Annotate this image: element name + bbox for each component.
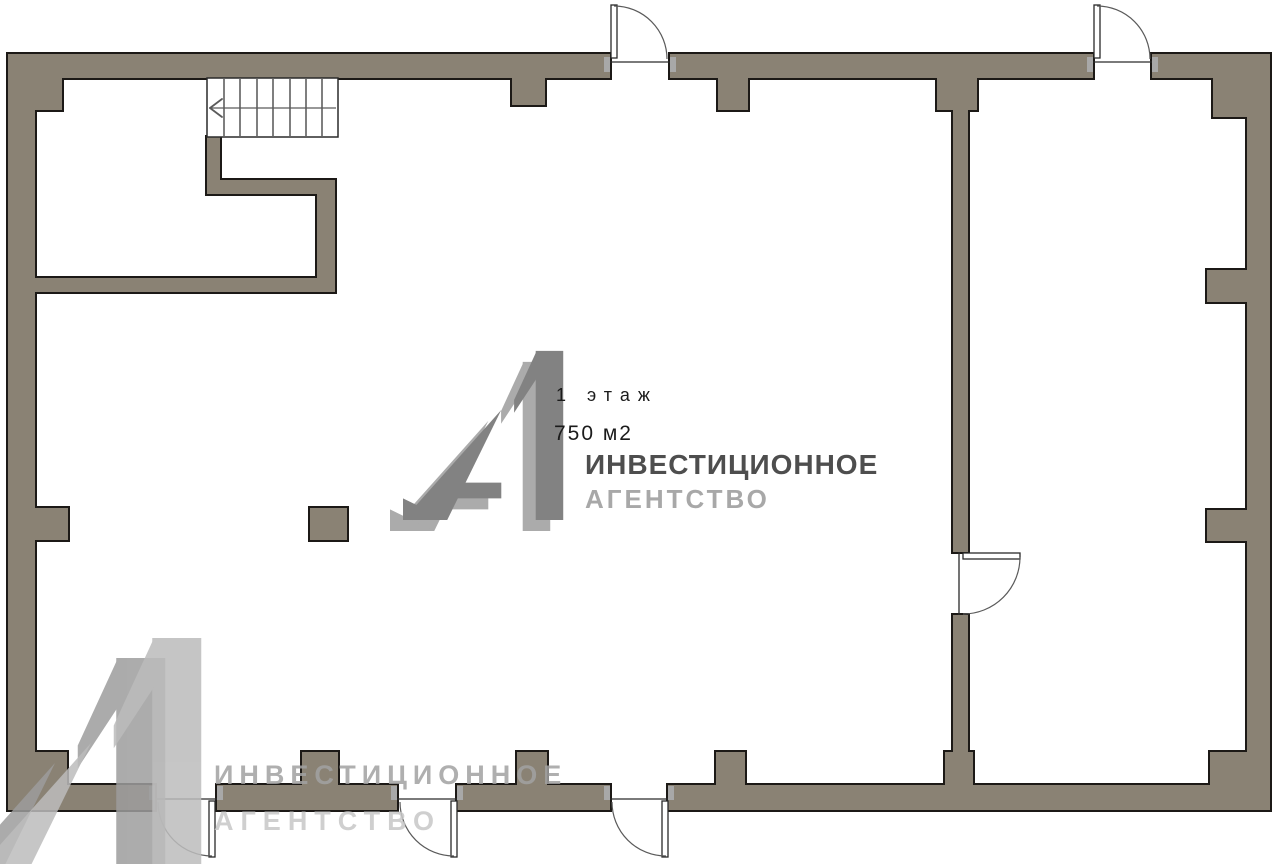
wall-segment — [718, 78, 748, 110]
wall-segment — [1207, 510, 1247, 541]
logo-mark-shape — [152, 638, 201, 864]
area-label: 750 м2 — [554, 423, 633, 444]
wall-segment — [35, 78, 62, 110]
wall-segment — [1207, 270, 1247, 302]
wall-segment — [1210, 752, 1247, 785]
door-jamb — [1087, 57, 1093, 72]
door-swing-arc — [614, 6, 667, 59]
floor-label: 1 этаж — [556, 386, 658, 404]
door-jamb — [1152, 57, 1158, 72]
floor-plan-canvas — [0, 0, 1280, 864]
wall-segment — [953, 615, 968, 752]
wall-segment — [716, 752, 745, 785]
wall-segment — [317, 194, 335, 292]
wall-segment — [670, 54, 1093, 78]
wall-segment — [512, 78, 545, 105]
wall-segment — [945, 752, 973, 785]
door-leaf — [1094, 5, 1100, 58]
wall-segment — [35, 278, 335, 292]
wall-segment — [35, 508, 68, 540]
logo-mark-shape — [450, 483, 501, 499]
wall-segment — [1213, 78, 1247, 117]
watermark-brand-line2: АГЕНТСТВО — [214, 808, 441, 835]
door-jamb — [604, 57, 610, 72]
door-leaf — [611, 5, 617, 58]
door-leaf — [662, 801, 668, 857]
door-swing-arc — [1097, 6, 1150, 59]
wall-segment — [8, 54, 35, 810]
wall-segment — [937, 78, 977, 110]
floor-plan-page: 1 этаж 750 м2 ИНВЕСТИЦИОННОЕ АГЕНТСТВО И… — [0, 0, 1280, 864]
door-swing-arc — [963, 557, 1020, 614]
door-swing-arc — [612, 802, 666, 856]
door-leaf — [451, 801, 457, 857]
wall-segment — [8, 54, 610, 78]
wall-segment — [668, 785, 1270, 810]
wall-segment — [207, 180, 335, 194]
door-jamb — [604, 786, 610, 800]
wall-segment — [953, 110, 968, 552]
door-jamb — [670, 57, 676, 72]
wall-segment — [1247, 54, 1270, 810]
brand-name-line1: ИНВЕСТИЦИОННОЕ — [585, 451, 878, 479]
door-jamb — [668, 786, 674, 800]
wall-segment — [310, 508, 347, 540]
watermark-brand-line1: ИНВЕСТИЦИОННОЕ — [214, 762, 567, 789]
brand-name-line2: АГЕНТСТВО — [585, 486, 770, 512]
logo-mark-center — [403, 351, 563, 520]
door-leaf — [963, 553, 1020, 559]
